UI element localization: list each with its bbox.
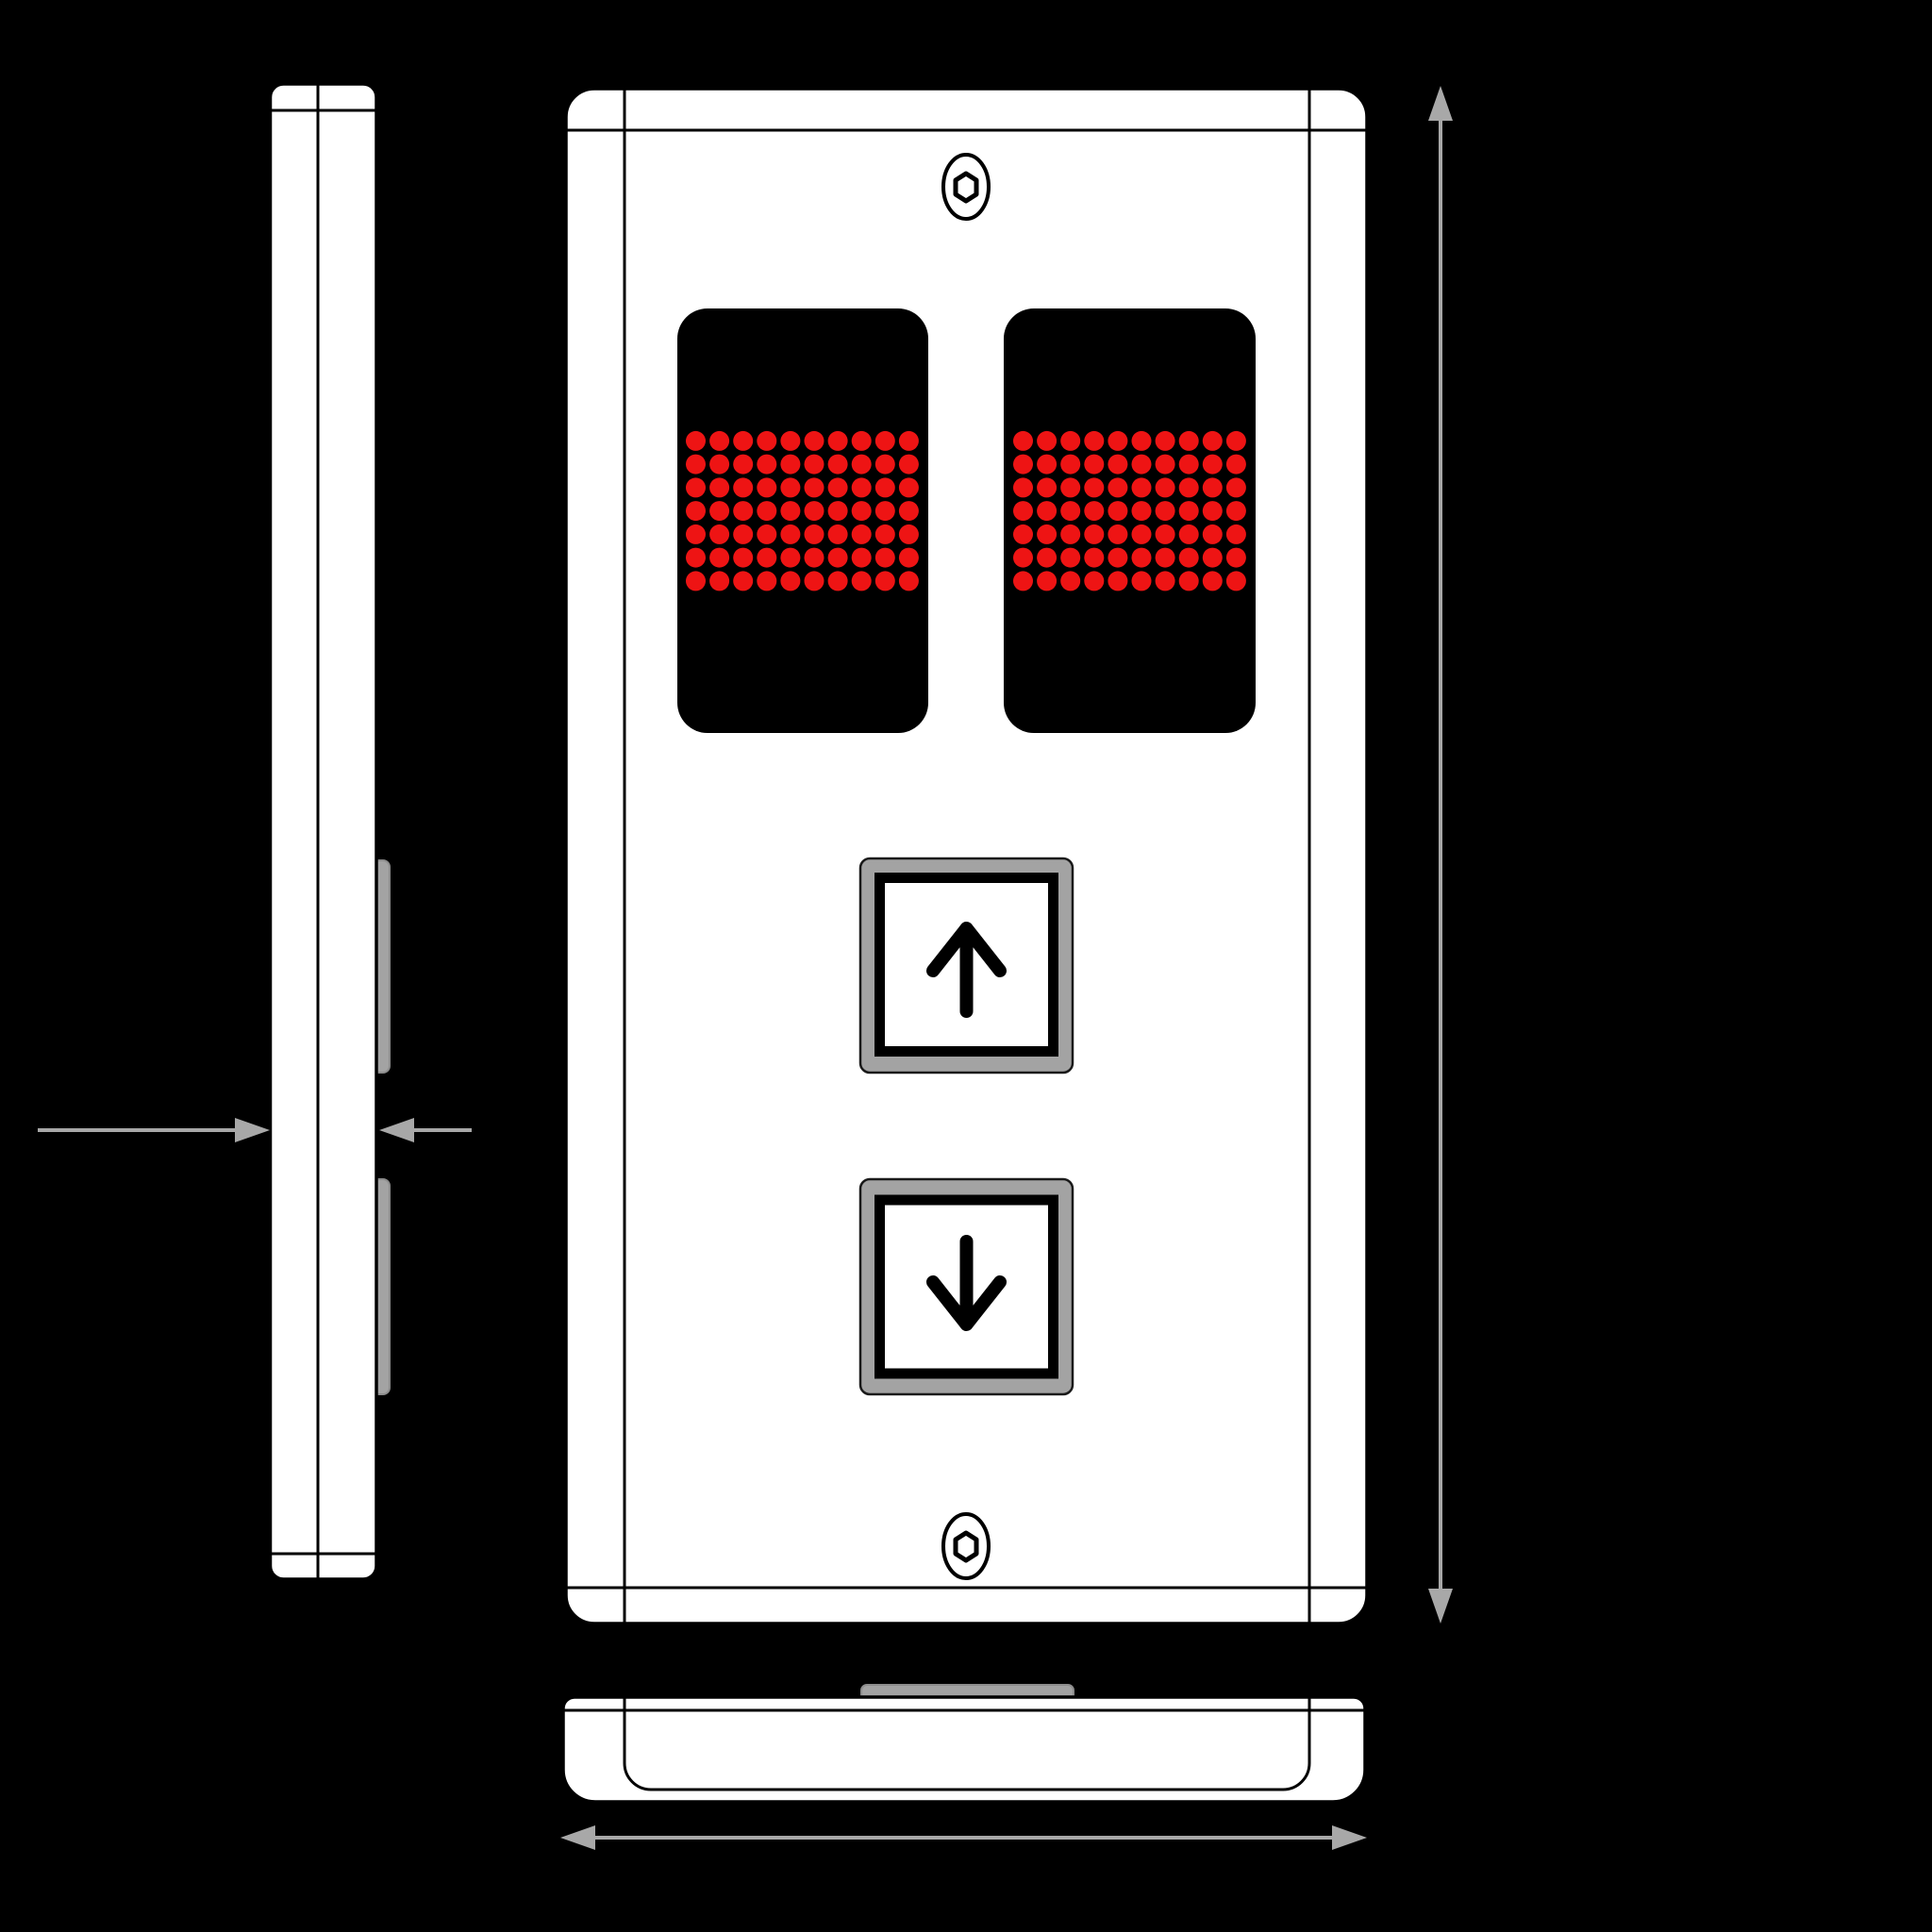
led-dot [1084, 477, 1104, 497]
led-dot [875, 571, 895, 591]
led-dot [805, 525, 824, 544]
led-dot [1060, 477, 1080, 497]
led-display-window [1004, 308, 1256, 733]
led-dot [709, 525, 729, 544]
led-dot [828, 477, 848, 497]
led-dot [805, 501, 824, 521]
led-dot [852, 571, 872, 591]
thickness-arrowhead-right-pointing [235, 1118, 270, 1142]
led-dot [780, 501, 800, 521]
led-dot [1179, 431, 1199, 451]
led-dot [1060, 431, 1080, 451]
led-dot [875, 501, 895, 521]
led-dot [1037, 571, 1057, 591]
led-dot [1203, 431, 1223, 451]
led-dot [1013, 431, 1033, 451]
led-dot [805, 431, 824, 451]
led-dot [1132, 431, 1152, 451]
led-dot [1132, 548, 1152, 568]
led-dot [1108, 525, 1127, 544]
led-dot [709, 455, 729, 475]
led-dot [1060, 525, 1080, 544]
led-dot [1013, 477, 1033, 497]
led-dot [875, 455, 895, 475]
led-dot [709, 501, 729, 521]
led-dot [899, 477, 919, 497]
height-arrowhead-down [1428, 1589, 1453, 1624]
led-dot [1203, 548, 1223, 568]
led-dot [899, 501, 919, 521]
screw-bottom [943, 1514, 989, 1578]
led-dot [875, 525, 895, 544]
led-dot [1013, 525, 1033, 544]
led-dot [1084, 571, 1104, 591]
led-dot [1037, 455, 1057, 475]
led-dot [1203, 501, 1223, 521]
led-dot [780, 571, 800, 591]
up-button[interactable] [860, 858, 1073, 1073]
led-dot [828, 525, 848, 544]
led-dot [733, 477, 753, 497]
led-dot [852, 525, 872, 544]
led-dot [1179, 501, 1199, 521]
led-dot [733, 571, 753, 591]
led-dot [733, 525, 753, 544]
hex-socket-icon [956, 174, 976, 201]
led-dot [1013, 548, 1033, 568]
led-dot [709, 431, 729, 451]
led-dot [899, 455, 919, 475]
led-dot [1108, 455, 1127, 475]
led-dot [1156, 455, 1175, 475]
height-dimension: 280 mm [1428, 86, 1676, 1624]
led-dot [757, 477, 776, 497]
led-dot [1037, 548, 1057, 568]
led-dot [1132, 501, 1152, 521]
screw-top [943, 155, 989, 219]
led-dot [757, 571, 776, 591]
led-dot [1108, 548, 1127, 568]
led-dot [1037, 477, 1057, 497]
led-dot [1179, 548, 1199, 568]
led-dot [899, 431, 919, 451]
led-dot [875, 477, 895, 497]
led-dot [899, 548, 919, 568]
led-dot [1132, 525, 1152, 544]
side-view [271, 84, 391, 1579]
led-dot [805, 477, 824, 497]
led-dot [1179, 571, 1199, 591]
led-dot [1013, 455, 1033, 475]
led-display-left [677, 308, 928, 733]
led-dot [805, 455, 824, 475]
led-dot [780, 525, 800, 544]
led-dot [686, 431, 706, 451]
led-dot [780, 455, 800, 475]
led-dot [852, 548, 872, 568]
led-dot [1156, 571, 1175, 591]
led-dot [733, 548, 753, 568]
bottom-profile-outline [563, 1697, 1365, 1802]
width-dimension: 150 mm [560, 1825, 1367, 1907]
led-dot [1226, 571, 1246, 591]
led-dot [828, 548, 848, 568]
led-dot [709, 548, 729, 568]
led-dot [852, 501, 872, 521]
technical-drawing: 20 mm [0, 0, 1932, 1932]
led-dot [1084, 431, 1104, 451]
led-dot [757, 525, 776, 544]
led-dot [686, 571, 706, 591]
led-dot [805, 571, 824, 591]
led-dot [1226, 501, 1246, 521]
led-dot [1203, 525, 1223, 544]
led-dot [1156, 477, 1175, 497]
led-dot [1132, 571, 1152, 591]
led-dot [828, 455, 848, 475]
led-dot [686, 548, 706, 568]
led-dot [1132, 455, 1152, 475]
led-dot [733, 455, 753, 475]
led-dot [1156, 548, 1175, 568]
led-dot [1084, 501, 1104, 521]
led-dot [780, 431, 800, 451]
led-dot [757, 431, 776, 451]
led-dot [686, 455, 706, 475]
width-arrowhead-right [1332, 1825, 1367, 1850]
height-arrowhead-up [1428, 86, 1453, 121]
led-dot [828, 501, 848, 521]
led-dot [805, 548, 824, 568]
led-dot [733, 501, 753, 521]
led-dot [1203, 477, 1223, 497]
led-dot [1226, 431, 1246, 451]
led-dot [1203, 455, 1223, 475]
led-dot [875, 431, 895, 451]
led-dot [1108, 571, 1127, 591]
led-dot [1108, 501, 1127, 521]
led-dot [1156, 501, 1175, 521]
led-dot [780, 477, 800, 497]
led-dot [709, 571, 729, 591]
led-dot [1013, 571, 1033, 591]
led-dot [1084, 548, 1104, 568]
led-dot [1226, 525, 1246, 544]
led-dot [1108, 431, 1127, 451]
led-dot [1060, 571, 1080, 591]
led-dot [1156, 525, 1175, 544]
led-dot [686, 525, 706, 544]
down-button[interactable] [860, 1179, 1073, 1394]
height-dimension-label: 280 mm [1479, 801, 1676, 856]
front-view [566, 89, 1367, 1624]
led-dot [1013, 501, 1033, 521]
bottom-view [563, 1685, 1365, 1802]
led-dot [1108, 477, 1127, 497]
led-dot [899, 571, 919, 591]
led-dot [852, 455, 872, 475]
thickness-dimension-label: 20 mm [38, 1070, 205, 1124]
led-dot [875, 548, 895, 568]
led-dot [1060, 501, 1080, 521]
led-dot [1179, 525, 1199, 544]
led-dot [1132, 477, 1152, 497]
led-dot [1226, 455, 1246, 475]
side-panel-outline [271, 84, 377, 1579]
led-dot [852, 477, 872, 497]
led-dot [1060, 548, 1080, 568]
led-dot [686, 477, 706, 497]
led-dot [709, 477, 729, 497]
led-dot [757, 501, 776, 521]
led-dot [1084, 455, 1104, 475]
led-dot [1084, 525, 1104, 544]
led-dot [686, 501, 706, 521]
hex-socket-icon [956, 1533, 976, 1560]
drawing-canvas: 20 mm [0, 0, 1932, 1932]
width-dimension-label: 150 mm [868, 1853, 1065, 1907]
led-dot [1037, 431, 1057, 451]
led-dot [1203, 571, 1223, 591]
led-dot [1037, 501, 1057, 521]
led-dot [1060, 455, 1080, 475]
led-dot [828, 571, 848, 591]
led-display-right [1004, 308, 1256, 733]
led-dot [733, 431, 753, 451]
width-arrowhead-left [560, 1825, 595, 1850]
led-dot [1226, 548, 1246, 568]
led-display-window [677, 308, 928, 733]
led-dot [1179, 477, 1199, 497]
led-dot [1179, 455, 1199, 475]
thickness-dimension: 20 mm [38, 1070, 472, 1142]
led-dot [757, 548, 776, 568]
thickness-arrowhead-left-pointing [379, 1118, 414, 1142]
led-dot [899, 525, 919, 544]
led-dot [780, 548, 800, 568]
led-dot [757, 455, 776, 475]
led-dot [852, 431, 872, 451]
led-dot [1226, 477, 1246, 497]
led-dot [828, 431, 848, 451]
led-dot [1156, 431, 1175, 451]
led-dot [1037, 525, 1057, 544]
